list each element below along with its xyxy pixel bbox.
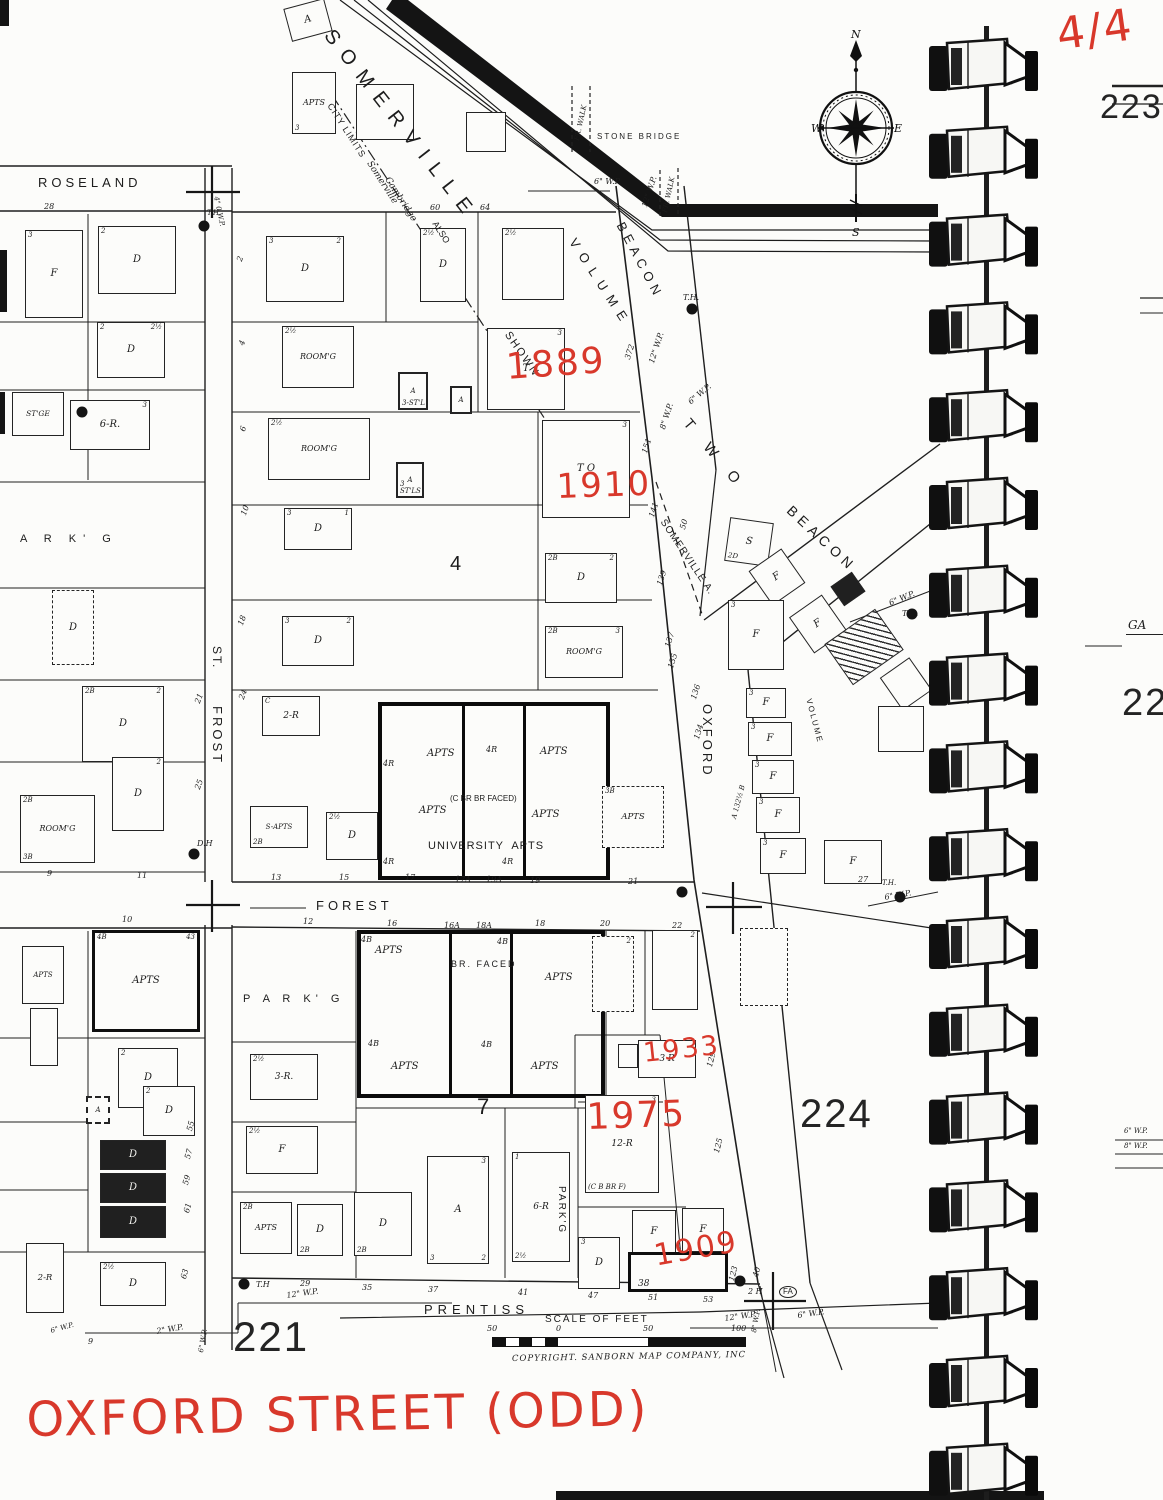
- spiral-binding-ring: [929, 654, 1038, 706]
- spiral-binding-ring: [929, 39, 1038, 91]
- spiral-binding-ring: [929, 1093, 1038, 1145]
- sanborn-map-scan-page: N S W E AAPTS3F3D2D22½ST'GE6-R.3DD2B2D2R…: [0, 0, 1163, 1500]
- spiral-binding-ring: [929, 917, 1038, 969]
- spiral-binding-ring: [929, 302, 1038, 354]
- spiral-binding-ring: [929, 215, 1038, 267]
- spiral-binding-ring: [929, 566, 1038, 618]
- spiral-binding-ring: [929, 1356, 1038, 1408]
- spiral-binding-ring: [929, 741, 1038, 793]
- spiral-binding-ring: [929, 1268, 1038, 1320]
- spiral-binding-ring: [929, 478, 1038, 530]
- spiral-binding-ring: [929, 390, 1038, 442]
- spiral-binding-ring: [929, 1180, 1038, 1232]
- spiral-binding-ring: [929, 1005, 1038, 1057]
- spiral-binding-ring: [929, 829, 1038, 881]
- spiral-binding: [0, 0, 1163, 1500]
- spiral-binding-ring: [929, 127, 1038, 179]
- spiral-binding-ring: [929, 1444, 1038, 1496]
